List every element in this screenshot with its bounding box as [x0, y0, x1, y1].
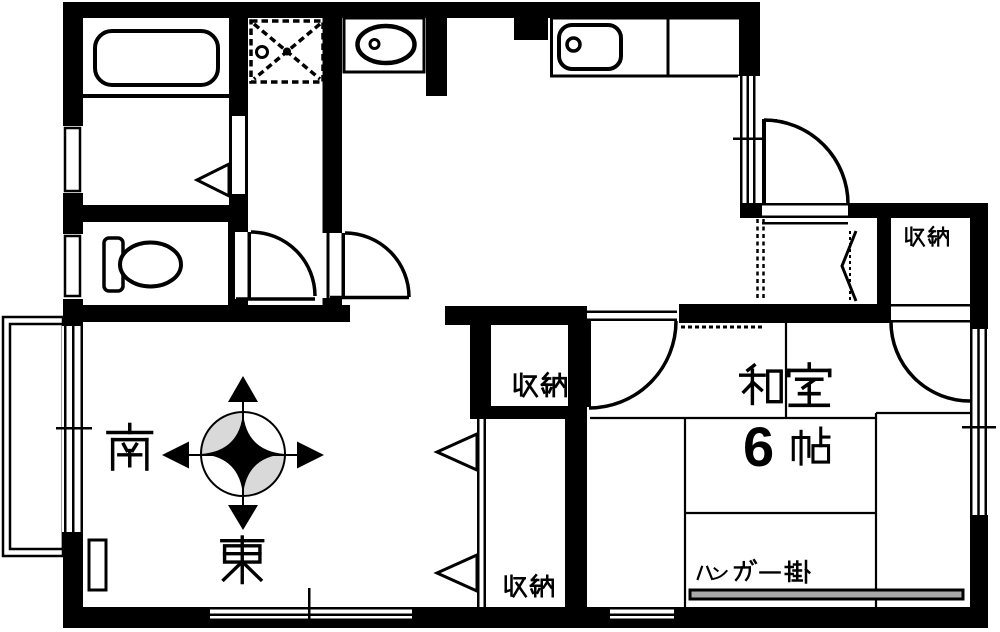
- svg-text:6: 6: [743, 415, 774, 478]
